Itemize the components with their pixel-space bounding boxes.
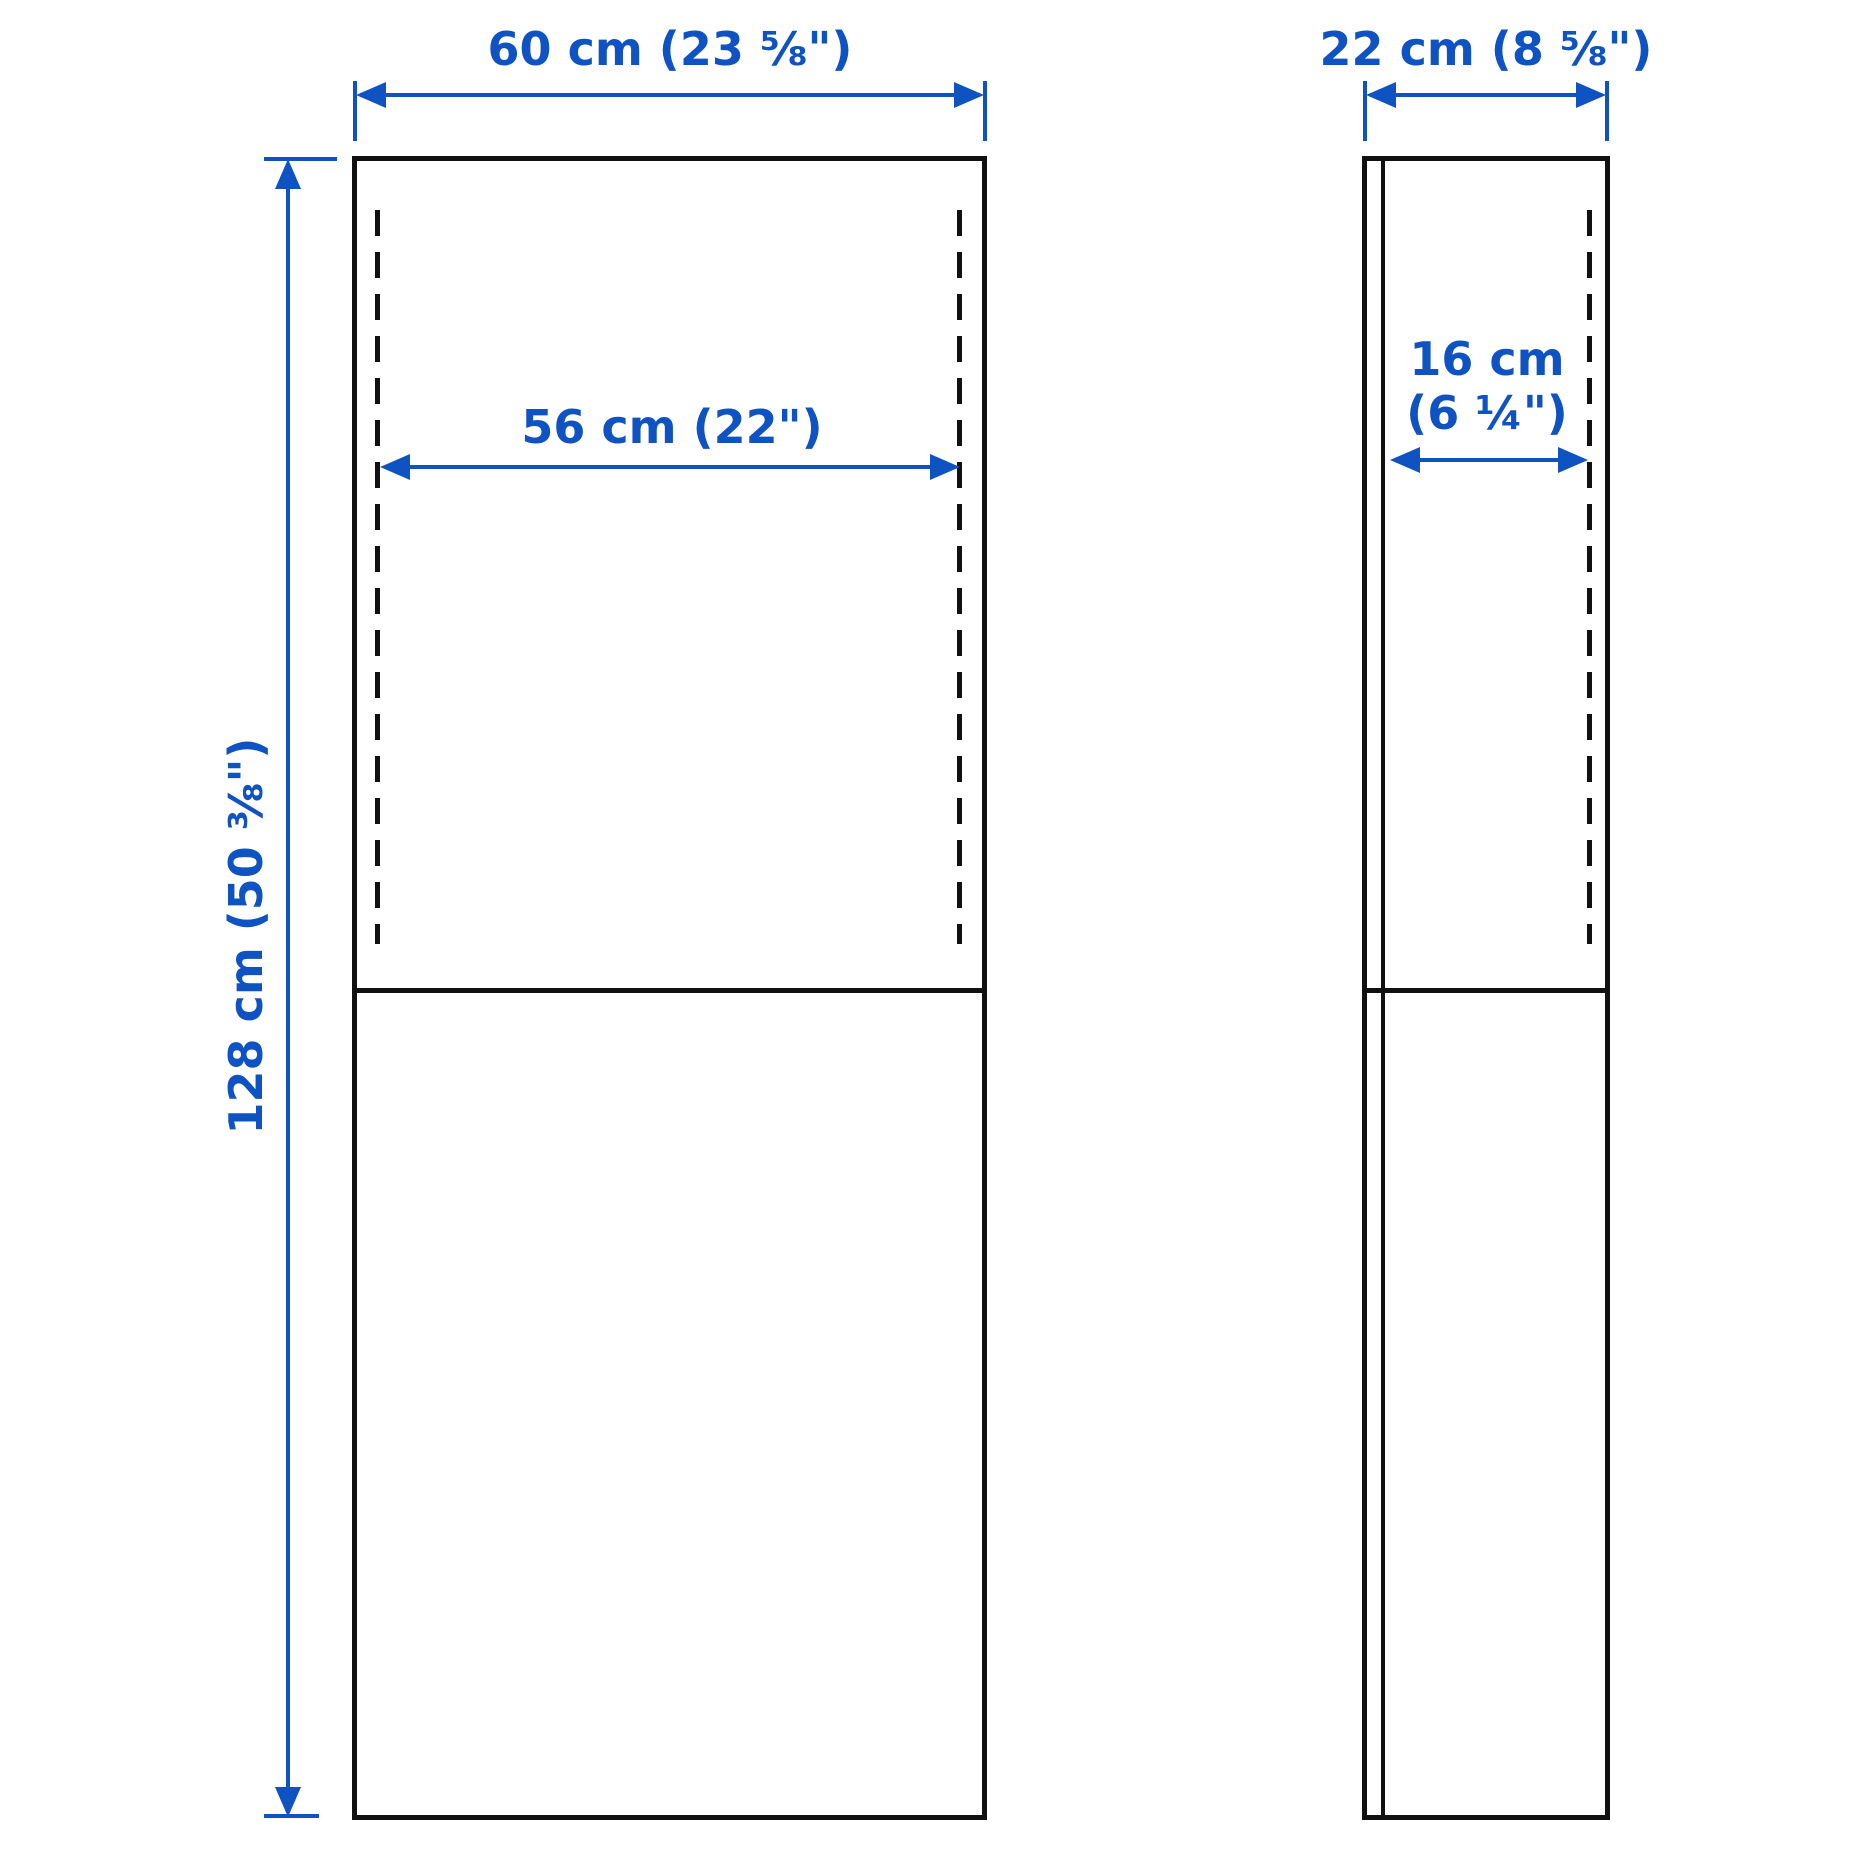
- overall-width-tick-left: [353, 81, 357, 141]
- overall-depth-arrowhead-left-icon: [1366, 82, 1396, 108]
- overall-width-arrowhead-left-icon: [356, 82, 386, 108]
- interior-width-arrowhead-right-icon: [930, 454, 960, 480]
- overall-height-arrowhead-top-icon: [275, 159, 301, 189]
- overall-height-tick-top: [264, 157, 337, 161]
- overall-width-dimension-label: 60 cm (23 ⅝"): [320, 22, 1020, 76]
- overall-height-dimension-label: 128 cm (50 ⅜"): [219, 586, 273, 1286]
- overall-height-dimension-line: [286, 165, 290, 1813]
- overall-depth-arrowhead-right-icon: [1576, 82, 1606, 108]
- side-view-interior-dashed-line: [1587, 210, 1592, 944]
- side-view-divider-line: [1367, 988, 1607, 993]
- overall-width-dimension-line: [360, 93, 980, 97]
- interior-depth-label-line1: 16 cm: [1137, 332, 1837, 386]
- overall-height-arrowhead-bottom-icon: [275, 1787, 301, 1817]
- interior-depth-dimension-label: 16 cm (6 ¼"): [1137, 332, 1837, 440]
- dimension-diagram: 60 cm (23 ⅝") 56 cm (22") 128 cm (50 ⅜")…: [0, 0, 1860, 1860]
- overall-width-tick-right: [983, 81, 987, 141]
- interior-width-dimension-label: 56 cm (22"): [322, 400, 1022, 454]
- interior-depth-dimension-line: [1396, 458, 1582, 462]
- front-view-interior-dashed-line-left: [375, 210, 380, 944]
- interior-width-dimension-line: [386, 465, 956, 469]
- front-view-door-divider-line: [357, 988, 982, 993]
- overall-depth-tick-left: [1363, 81, 1367, 141]
- overall-width-arrowhead-right-icon: [954, 82, 984, 108]
- interior-width-arrowhead-left-icon: [380, 454, 410, 480]
- interior-depth-arrowhead-left-icon: [1390, 447, 1420, 473]
- interior-depth-arrowhead-right-icon: [1558, 447, 1588, 473]
- overall-depth-dimension-label: 22 cm (8 ⅝"): [1136, 22, 1836, 76]
- interior-depth-label-line2: (6 ¼"): [1137, 386, 1837, 440]
- overall-height-tick-bottom: [264, 1814, 319, 1818]
- front-view-interior-dashed-line-right: [957, 210, 962, 944]
- overall-depth-dimension-line: [1370, 93, 1602, 97]
- overall-depth-tick-right: [1605, 81, 1609, 141]
